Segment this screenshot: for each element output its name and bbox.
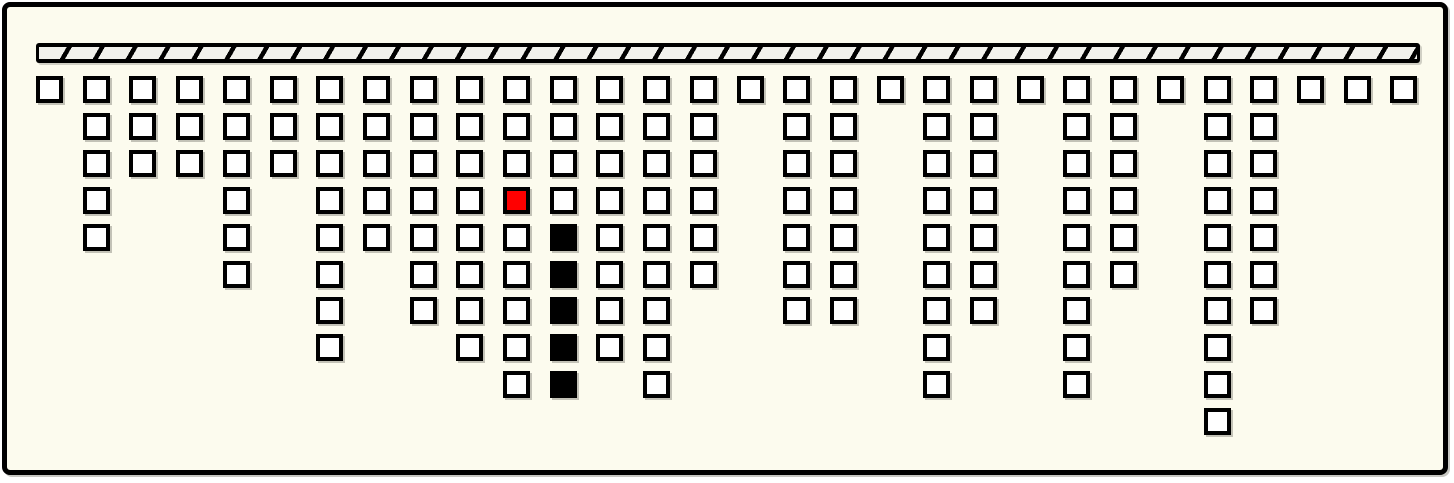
grid-square[interactable] [1204,76,1231,103]
grid-square[interactable] [596,76,623,103]
grid-square[interactable] [643,334,670,361]
grid-square[interactable] [503,76,530,103]
grid-square[interactable] [316,76,343,103]
grid-square[interactable] [1250,76,1277,103]
grid-square[interactable] [223,187,250,214]
grid-square[interactable] [550,187,577,214]
grid-square[interactable] [596,261,623,288]
grid-square[interactable] [503,371,530,398]
grid-square[interactable] [830,261,857,288]
grid-square[interactable] [1204,150,1231,177]
grid-square[interactable] [596,187,623,214]
grid-square[interactable] [1204,187,1231,214]
grid-square[interactable] [456,334,483,361]
grid-square[interactable] [970,187,997,214]
grid-square[interactable] [550,113,577,140]
grid-square[interactable] [176,150,203,177]
grid-square[interactable] [596,113,623,140]
grid-square[interactable] [923,371,950,398]
grid-square[interactable] [783,297,810,324]
grid-square[interactable] [970,113,997,140]
grid-square[interactable] [690,76,717,103]
grid-square[interactable] [690,113,717,140]
grid-square[interactable] [970,261,997,288]
black-square[interactable] [550,334,577,361]
black-square[interactable] [550,224,577,251]
grid-square[interactable] [643,150,670,177]
square-grid [0,0,1454,483]
grid-square[interactable] [316,224,343,251]
red-square[interactable] [503,187,530,214]
grid-square[interactable] [923,334,950,361]
grid-square[interactable] [270,113,297,140]
grid-square[interactable] [363,150,390,177]
grid-square[interactable] [1250,113,1277,140]
grid-square[interactable] [1110,187,1137,214]
grid-square[interactable] [1063,297,1090,324]
grid-square[interactable] [830,113,857,140]
grid-square[interactable] [1204,261,1231,288]
grid-square[interactable] [1110,261,1137,288]
grid-square[interactable] [223,261,250,288]
grid-square[interactable] [923,297,950,324]
grid-square[interactable] [923,187,950,214]
grid-square[interactable] [503,297,530,324]
grid-square[interactable] [83,224,110,251]
grid-square[interactable] [1297,76,1324,103]
grid-square[interactable] [1110,76,1137,103]
grid-square[interactable] [456,113,483,140]
grid-square[interactable] [1204,297,1231,324]
grid-square[interactable] [970,150,997,177]
grid-square[interactable] [316,261,343,288]
grid-square[interactable] [129,76,156,103]
grid-square[interactable] [1250,261,1277,288]
grid-square[interactable] [223,113,250,140]
grid-square[interactable] [129,150,156,177]
grid-square[interactable] [456,297,483,324]
grid-square[interactable] [363,224,390,251]
grid-square[interactable] [1204,224,1231,251]
grid-square[interactable] [643,187,670,214]
grid-square[interactable] [690,187,717,214]
black-square[interactable] [550,371,577,398]
grid-square[interactable] [410,113,437,140]
grid-square[interactable] [1204,408,1231,435]
grid-square[interactable] [783,113,810,140]
grid-square[interactable] [1204,113,1231,140]
grid-square[interactable] [970,76,997,103]
grid-square[interactable] [830,150,857,177]
grid-square[interactable] [596,224,623,251]
hatched-ceiling-bar [36,43,1420,63]
grid-square[interactable] [1250,187,1277,214]
grid-square[interactable] [1017,76,1044,103]
grid-square[interactable] [550,150,577,177]
grid-square[interactable] [596,150,623,177]
grid-square[interactable] [783,150,810,177]
grid-square[interactable] [316,297,343,324]
black-square[interactable] [550,297,577,324]
grid-square[interactable] [1063,371,1090,398]
grid-square[interactable] [503,150,530,177]
grid-square[interactable] [643,297,670,324]
grid-square[interactable] [830,187,857,214]
grid-square[interactable] [456,76,483,103]
grid-square[interactable] [643,113,670,140]
grid-square[interactable] [363,187,390,214]
grid-square[interactable] [970,224,997,251]
grid-square[interactable] [456,150,483,177]
grid-square[interactable] [1063,113,1090,140]
grid-square[interactable] [1063,334,1090,361]
grid-square[interactable] [830,76,857,103]
grid-square[interactable] [83,187,110,214]
grid-square[interactable] [316,334,343,361]
grid-square[interactable] [223,224,250,251]
grid-square[interactable] [923,224,950,251]
grid-square[interactable] [690,261,717,288]
grid-square[interactable] [783,76,810,103]
grid-square[interactable] [1250,297,1277,324]
grid-square[interactable] [1063,187,1090,214]
grid-square[interactable] [176,76,203,103]
grid-square[interactable] [690,150,717,177]
grid-square[interactable] [83,76,110,103]
grid-square[interactable] [456,224,483,251]
grid-square[interactable] [643,261,670,288]
grid-square[interactable] [1063,150,1090,177]
grid-square[interactable] [830,224,857,251]
grid-square[interactable] [363,76,390,103]
grid-square[interactable] [410,150,437,177]
grid-square[interactable] [456,187,483,214]
grid-square[interactable] [1157,76,1184,103]
grid-square[interactable] [1063,224,1090,251]
grid-square[interactable] [923,76,950,103]
grid-square[interactable] [503,224,530,251]
grid-square[interactable] [223,150,250,177]
grid-square[interactable] [1204,334,1231,361]
grid-square[interactable] [410,187,437,214]
grid-square[interactable] [550,76,577,103]
grid-square[interactable] [783,187,810,214]
grid-square[interactable] [1063,261,1090,288]
grid-square[interactable] [410,224,437,251]
grid-square[interactable] [410,76,437,103]
grid-square[interactable] [83,150,110,177]
black-square[interactable] [550,261,577,288]
grid-square[interactable] [456,261,483,288]
grid-square[interactable] [363,113,390,140]
grid-square[interactable] [83,113,110,140]
grid-square[interactable] [410,297,437,324]
grid-square[interactable] [970,297,997,324]
grid-square[interactable] [503,261,530,288]
grid-square[interactable] [596,297,623,324]
hatch-pattern [39,47,1417,59]
grid-square[interactable] [410,261,437,288]
grid-square[interactable] [176,113,203,140]
grid-square[interactable] [1390,76,1417,103]
grid-square[interactable] [316,150,343,177]
grid-square[interactable] [1250,150,1277,177]
grid-square[interactable] [1250,224,1277,251]
grid-square[interactable] [36,76,63,103]
grid-square[interactable] [1110,224,1137,251]
grid-square[interactable] [316,113,343,140]
grid-square[interactable] [737,76,764,103]
grid-square[interactable] [1110,150,1137,177]
grid-square[interactable] [503,334,530,361]
grid-square[interactable] [643,76,670,103]
grid-square[interactable] [783,261,810,288]
grid-square[interactable] [1110,113,1137,140]
grid-square[interactable] [690,224,717,251]
grid-square[interactable] [1344,76,1371,103]
grid-square[interactable] [643,224,670,251]
grid-square[interactable] [783,224,810,251]
grid-square[interactable] [923,113,950,140]
grid-square[interactable] [643,371,670,398]
grid-square[interactable] [596,334,623,361]
grid-square[interactable] [1204,371,1231,398]
grid-square[interactable] [923,150,950,177]
grid-square[interactable] [223,76,250,103]
grid-square[interactable] [877,76,904,103]
grid-square[interactable] [503,113,530,140]
grid-square[interactable] [316,187,343,214]
grid-square[interactable] [830,297,857,324]
grid-square[interactable] [1063,76,1090,103]
grid-square[interactable] [270,76,297,103]
grid-square[interactable] [270,150,297,177]
grid-square[interactable] [129,113,156,140]
grid-square[interactable] [923,261,950,288]
